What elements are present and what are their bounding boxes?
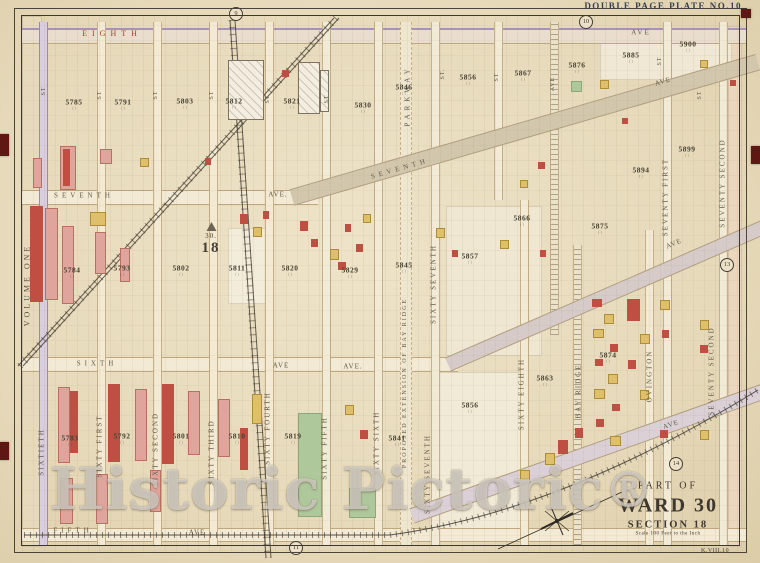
old-block-number: ( ) [679,153,696,157]
building-footprint [58,387,70,463]
building-footprint [188,391,200,455]
old-block-number: ( ) [173,440,190,444]
block-number: 5821( ) [284,97,301,109]
street-label: ST [209,90,215,99]
block-number: 5856( ) [460,73,477,85]
block-number: 5857( ) [462,252,479,264]
old-block-number: ( ) [62,442,79,446]
building-footprint [228,60,264,120]
building-footprint [604,314,614,324]
block-number: 5894( ) [633,166,650,178]
old-block-number: ( ) [460,81,477,85]
street-band [719,22,728,545]
block-number: 5875( ) [592,222,609,234]
building-footprint [311,239,318,247]
building-footprint [662,330,669,338]
old-block-number: ( ) [396,91,413,95]
building-footprint [33,158,42,188]
building-footprint [545,453,555,465]
building-footprint [558,440,568,454]
building-footprint [30,206,43,302]
volume-label: VOLUME ONE [23,244,32,327]
building-footprint [610,436,621,446]
old-block-number: ( ) [514,222,531,226]
binding-tab [0,442,9,460]
street-label: AVE. [268,192,287,199]
street-label: PARKWAY [405,65,412,126]
building-footprint [596,419,604,427]
old-block-number: ( ) [592,230,609,234]
block-number: 5866( ) [514,214,531,226]
park-area [571,81,582,92]
old-block-number: ( ) [515,77,532,81]
building-footprint [135,389,147,461]
building-footprint [282,70,289,77]
block-number: 5791( ) [115,98,132,110]
old-block-number: ( ) [355,109,372,113]
block-number: 5846( ) [396,83,413,95]
building-footprint [700,430,709,440]
building-footprint [320,70,329,112]
building-footprint [345,405,354,415]
building-footprint [162,384,174,464]
building-footprint [592,299,602,307]
building-footprint [252,394,262,424]
street-label: EIGHTH [82,30,142,38]
block-number: 5819( ) [285,432,302,444]
street-label: SEVENTY FIRST [663,158,670,236]
street-label: SEVENTY SECOND [720,138,727,227]
old-block-number: ( ) [680,48,697,52]
old-block-number: ( ) [389,442,406,446]
street-label: AVE [631,30,650,37]
street-label: SIXTY FIRST [97,414,104,477]
building-footprint [108,384,120,462]
building-footprint [45,208,58,300]
park-area [349,488,376,518]
street-label: FIFTH [53,528,92,535]
block-number: 5802( ) [173,264,190,276]
building-footprint [330,249,339,260]
block-number: 5876( ) [569,61,586,73]
building-footprint [600,80,609,89]
plate-corner-code: K.VIII.10 [701,548,729,554]
block-number: 5803( ) [177,97,194,109]
street-label: ST [153,90,159,99]
block-number: 5899( ) [679,145,696,157]
block-number: 5829( ) [342,266,359,278]
street-label: SIXTY SIXTH [374,411,381,476]
triangle-icon [206,222,216,231]
building-footprint [538,162,545,169]
street-label: SIXTY FIFTH [322,416,329,480]
old-block-number: ( ) [226,105,243,109]
old-block-number: ( ) [229,440,246,444]
section-marker: 30. 18 [202,222,221,257]
street-label: ST [657,56,663,65]
block-number: 5900( ) [680,40,697,52]
street-label: AVE [273,363,289,370]
street-label: ST [41,86,47,95]
building-footprint [640,334,650,344]
building-footprint [436,228,445,238]
building-footprint [300,221,308,231]
atlas-plate: EIGHTHAVESEVENTHAVE.SEVENTHAVESIXTHAVEAV… [0,0,760,563]
block-number: 5812( ) [226,97,243,109]
building-footprint [218,399,230,457]
block-number: 5830( ) [355,101,372,113]
old-block-number: ( ) [623,59,640,63]
street-label: SIXTY EIGHTH [519,358,526,430]
block-number: 5785( ) [66,98,83,110]
park-area [298,413,322,517]
cartouche-section: SECTION 18 [583,518,753,531]
old-block-number: ( ) [285,440,302,444]
building-footprint [660,430,668,438]
street-label: ST [265,94,271,103]
building-footprint [594,389,605,399]
street-label: AVE. [343,364,362,371]
old-block-number: ( ) [114,440,131,444]
street-label: AVE [550,77,556,92]
building-footprint [205,158,211,165]
street-label: ST [324,94,330,103]
building-footprint [500,240,509,249]
adjoining-plate-badge: 14 [669,457,683,471]
block-number: 5811( ) [229,264,246,276]
street-label: SEVENTH [54,193,114,200]
binding-tab [751,146,760,164]
building-footprint [298,62,320,114]
building-footprint [95,232,106,274]
block-number: 5867( ) [515,69,532,81]
building-footprint [100,149,112,164]
block-number: 5845( ) [396,261,413,273]
street-label: SIXTY SECOND [153,412,160,486]
old-block-number: ( ) [633,174,650,178]
street-label: ST [697,90,703,99]
old-block-number: ( ) [282,272,299,276]
street-label: ST [97,90,103,99]
building-footprint [627,299,640,321]
map-canvas: EIGHTHAVESEVENTHAVE.SEVENTHAVESIXTHAVEAV… [0,0,760,563]
street-label: SIXTY FOURTH [265,391,272,465]
block-number: 5863( ) [537,374,554,386]
block-number: 5784( ) [64,266,81,278]
old-block-number: ( ) [115,106,132,110]
old-block-number: ( ) [462,409,479,413]
block-number: 5874( ) [600,351,617,363]
old-block-number: ( ) [66,106,83,110]
street-label: BAY RIDGE [576,363,583,418]
street-label: OVINGTON [647,350,654,403]
binding-tab [0,134,9,156]
building-footprint [360,430,368,439]
street-label: SIXTY THIRD [209,419,216,484]
street-label: SIXTH [77,361,118,368]
building-footprint [575,428,583,438]
building-footprint [593,329,604,338]
adjoining-plate-badge: 13 [720,258,734,272]
plate-title: DOUBLE PAGE PLATE NO.10 [584,1,742,11]
old-block-number: ( ) [114,272,131,276]
cartouche-scale: Scale 100 Feet to the Inch [583,531,753,537]
street-label: ST. [440,68,446,79]
building-footprint [240,214,248,224]
building-footprint [540,250,546,257]
block-number: 5856( ) [462,401,479,413]
building-footprint [96,474,108,524]
block-number: 5793( ) [114,264,131,276]
building-footprint [140,158,149,167]
building-footprint [90,212,106,226]
building-footprint [63,149,70,186]
building-footprint [363,214,371,223]
section-number: 18 [202,240,221,257]
building-footprint [520,180,528,188]
binding-tab [741,9,751,18]
block-number: 5810( ) [229,432,246,444]
building-footprint [520,470,530,480]
title-cartouche: PART OF WARD 30 SECTION 18 Scale 100 Fee… [583,481,753,538]
old-block-number: ( ) [600,359,617,363]
block-number: 5783( ) [62,434,79,446]
cartouche-ward: WARD 30 [583,493,753,518]
building-footprint [612,404,620,411]
ward-number: 30. [202,232,221,240]
street-label: SEVENTY SECOND [709,326,716,415]
building-footprint [356,244,363,252]
block-number: 5885( ) [623,51,640,63]
old-block-number: ( ) [284,105,301,109]
street-label: AVE [189,530,205,537]
block-number: 5792( ) [114,432,131,444]
building-footprint [730,80,736,86]
old-block-number: ( ) [569,69,586,73]
adjoining-plate-badge: 10 [579,15,593,29]
street-label: ST [494,72,500,81]
old-block-number: ( ) [229,272,246,276]
old-block-number: ( ) [462,260,479,264]
building-footprint [263,211,269,219]
old-block-number: ( ) [537,382,554,386]
street-band [550,22,559,335]
building-footprint [608,374,618,384]
old-block-number: ( ) [342,274,359,278]
adjoining-plate-badge: 9 [229,7,243,21]
block-number: 5801( ) [173,432,190,444]
building-footprint [253,227,262,237]
building-footprint [452,250,458,257]
building-footprint [60,478,73,524]
old-block-number: ( ) [64,274,81,278]
block-number: 5820( ) [282,264,299,276]
adjoining-plate-badge: 11 [289,541,303,555]
old-block-number: ( ) [396,269,413,273]
street-label: SIXTY SEVENTH [425,434,432,514]
city-block [728,26,742,547]
street-label: SIXTY SEVENTH [431,244,438,324]
street-label: SIXTIETH [39,428,46,476]
block-number: 5841( ) [389,434,406,446]
building-footprint [628,360,636,369]
building-footprint [345,224,351,232]
building-footprint [660,300,670,310]
building-footprint [700,60,708,68]
old-block-number: ( ) [173,272,190,276]
old-block-number: ( ) [177,105,194,109]
cartouche-part-of: PART OF [583,481,753,494]
street-band [494,22,503,200]
building-footprint [622,118,628,124]
